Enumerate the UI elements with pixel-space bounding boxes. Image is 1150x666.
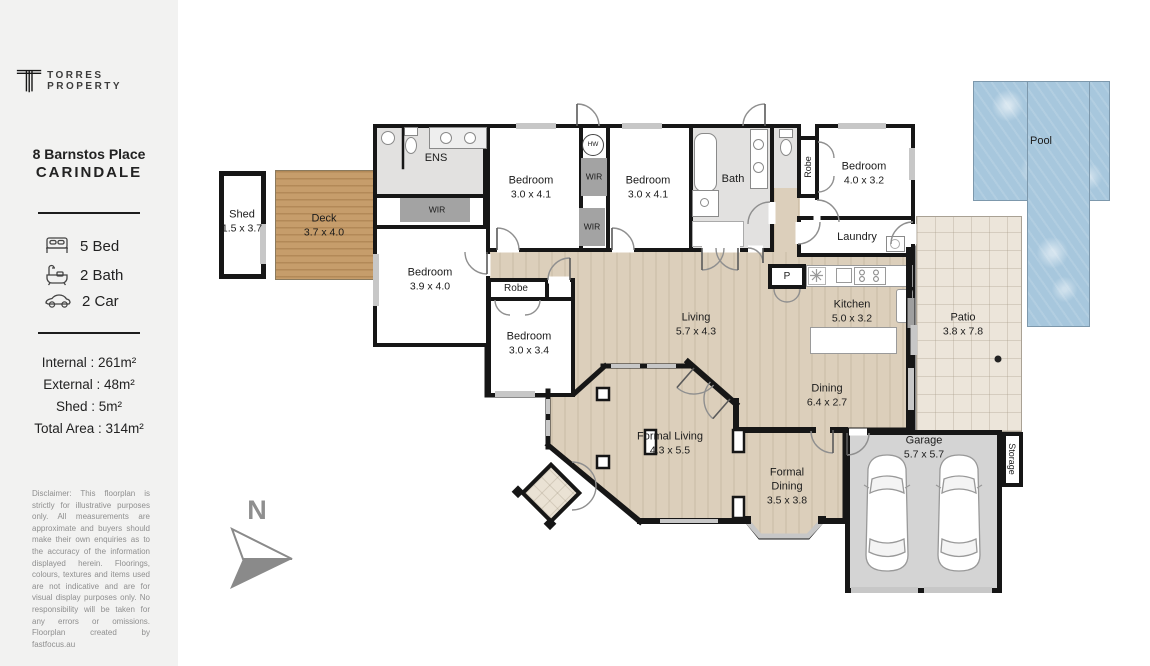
label-pool: Pool (1030, 135, 1052, 149)
label-bedroom-30a: Bedroom3.0 x 4.1 (509, 174, 554, 202)
label-bedroom-39: Bedroom3.9 x 4.0 (408, 266, 453, 294)
label-ens: ENS (425, 152, 448, 166)
label-laundry: Laundry (837, 231, 877, 245)
bathtub-icon (694, 133, 717, 192)
label-wir-ens: WIR (429, 205, 446, 216)
label-robe-bed: Robe (504, 283, 528, 296)
kitchen-island (810, 327, 897, 354)
pool-arm (1027, 82, 1090, 327)
label-bedroom-40: Bedroom4.0 x 3.2 (842, 160, 887, 188)
label-dining: Dining6.4 x 2.7 (807, 382, 847, 410)
label-patio: Patio3.8 x 7.8 (943, 311, 983, 339)
label-bedroom-30b: Bedroom3.0 x 4.1 (626, 174, 671, 202)
toilet-icon (404, 127, 418, 136)
label-formal-living: Formal Living4.3 x 5.5 (637, 430, 703, 458)
label-storage: Storage (1007, 443, 1017, 475)
vanity-icon (750, 129, 768, 189)
robe-side-box (545, 278, 575, 301)
compass-north-label: N (247, 494, 267, 528)
label-deck: Deck3.7 x 4.0 (304, 212, 344, 240)
label-wir2: WIR (584, 222, 601, 233)
cooktop-icon (854, 267, 886, 285)
shower-rose-icon (381, 131, 395, 145)
kitchen-sink-icon (836, 268, 852, 283)
label-garage: Garage5.7 x 5.7 (904, 434, 944, 462)
label-formal-dining: Formal Dining3.5 x 3.8 (767, 466, 807, 507)
label-shed: Shed1.5 x 3.7 (222, 208, 262, 236)
fridge-icon (896, 289, 913, 323)
label-bath: Bath (722, 173, 745, 187)
toilet-icon (780, 139, 792, 156)
label-pantry: P (784, 271, 791, 284)
label-robe-hall: Robe (803, 156, 813, 178)
toilet-icon (779, 129, 793, 138)
label-living: Living5.7 x 4.3 (676, 311, 716, 339)
shower-rose-icon (700, 198, 709, 207)
aircon-icon (808, 267, 826, 285)
label-hw: HW (588, 141, 599, 149)
laundry-tub-icon (890, 239, 900, 249)
car-icon (864, 455, 910, 571)
label-kitchen: Kitchen5.0 x 3.2 (832, 298, 872, 326)
bath-bench (692, 221, 744, 247)
vanity-icon (429, 127, 487, 149)
basin-icon (440, 132, 452, 144)
toilet-icon (405, 137, 417, 154)
label-wir1: WIR (586, 172, 603, 183)
car-icon (936, 455, 982, 571)
label-bedroom-34: Bedroom3.0 x 3.4 (507, 330, 552, 358)
basin-icon (753, 162, 764, 173)
floorplan-page: TORRES PROPERTY 8 Barnstos Place CARINDA… (0, 0, 1150, 666)
basin-icon (753, 139, 764, 150)
basin-icon (464, 132, 476, 144)
